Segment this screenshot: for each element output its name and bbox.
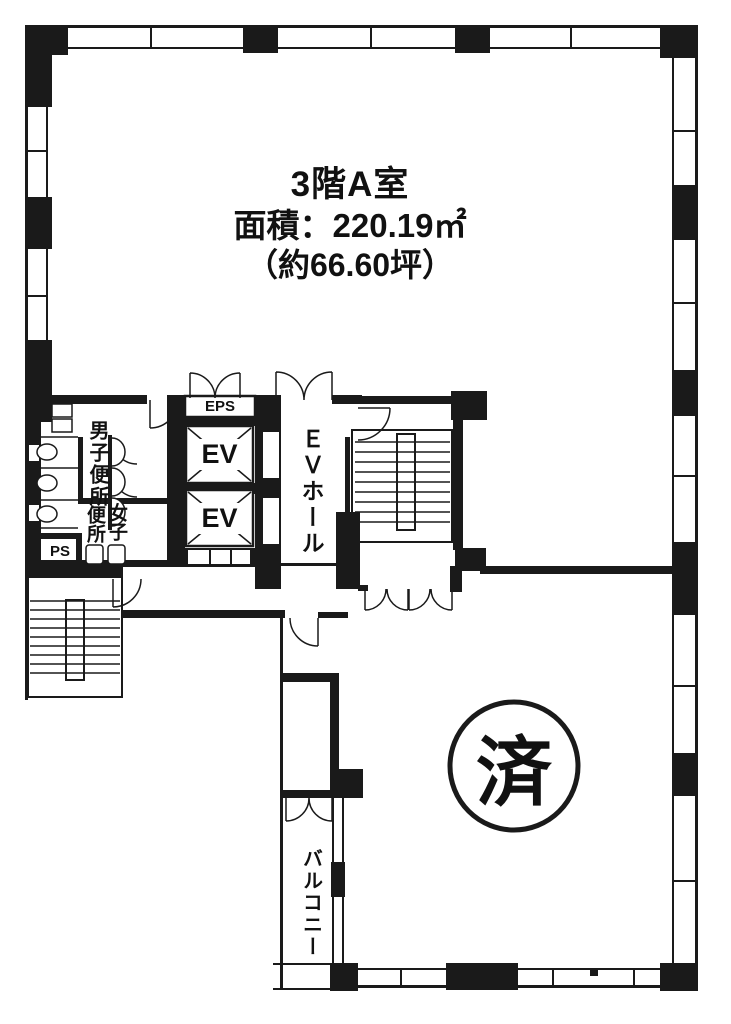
womens-toilet-label-left: 便所	[84, 499, 105, 549]
womens-toilet-label-right: 女子	[106, 499, 127, 545]
toilet-bowl	[37, 506, 57, 522]
urinal	[112, 438, 125, 466]
balcony-label: バルコニー	[297, 836, 325, 970]
unit-title-block: 3階A室 面積：220.19㎡ （約66.60坪）	[170, 164, 530, 284]
unit-name: 3階A室	[170, 164, 530, 206]
pipe-space-label: PS	[43, 540, 77, 562]
eps-label: EPS	[186, 397, 254, 416]
sink-fixture	[52, 404, 72, 417]
double-door-balcony	[286, 798, 332, 821]
floor-plan: 3階A室 面積：220.19㎡ （約66.60坪） EPS EV EV ＥＶホー…	[0, 0, 731, 1024]
sink-fixture	[52, 419, 72, 432]
door-corridor-west	[113, 579, 141, 607]
door-corridor-south	[290, 618, 318, 646]
stairwell-left-stringer	[66, 600, 84, 680]
double-doors-ev-landing-south	[365, 589, 452, 610]
toilet-fixture	[108, 545, 125, 564]
double-door-ev-hall-north	[276, 372, 332, 400]
ev-hall-label: ＥＶホール	[296, 418, 326, 566]
elevator-top-label: EV	[186, 427, 253, 482]
elevator-bottom-label: EV	[186, 491, 253, 545]
unit-area-tsubo: （約66.60坪）	[170, 246, 530, 284]
double-door-eps-corridor	[190, 373, 240, 398]
unit-area: 面積：220.19㎡	[170, 206, 530, 246]
toilet-bowl	[37, 444, 57, 460]
toilet-bowl	[37, 475, 57, 491]
door-stairwell-right-entry	[358, 408, 390, 440]
stamp-label: 済	[448, 701, 580, 831]
